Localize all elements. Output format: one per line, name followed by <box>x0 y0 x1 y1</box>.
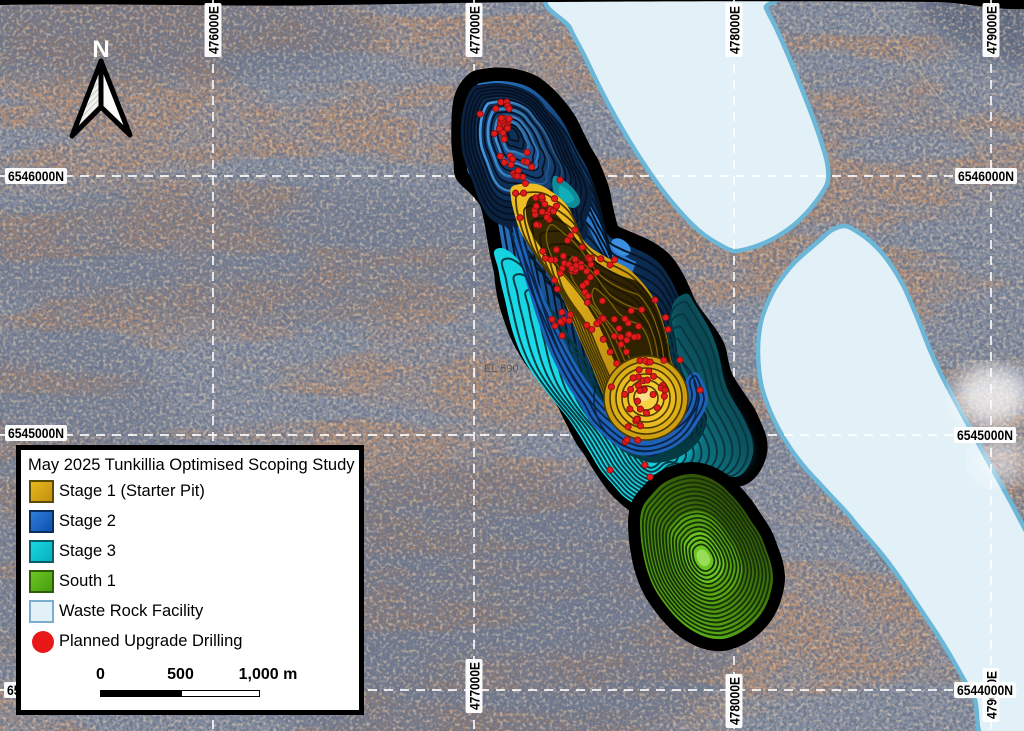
svg-text:6546000N: 6546000N <box>958 168 1014 184</box>
svg-text:6544000N: 6544000N <box>957 682 1013 698</box>
svg-text:477000E: 477000E <box>467 6 483 54</box>
svg-text:476000E: 476000E <box>206 6 222 54</box>
svg-text:478000E: 478000E <box>727 6 743 54</box>
svg-text:EL 590: EL 590 <box>484 363 518 375</box>
svg-text:478000E: 478000E <box>727 677 743 725</box>
svg-text:N: N <box>92 36 109 63</box>
svg-text:6545000N: 6545000N <box>957 427 1013 443</box>
svg-text:6546000N: 6546000N <box>8 168 64 184</box>
svg-text:6545000N: 6545000N <box>8 425 64 441</box>
svg-text:477000E: 477000E <box>467 662 483 710</box>
svg-text:479000E: 479000E <box>984 6 1000 54</box>
